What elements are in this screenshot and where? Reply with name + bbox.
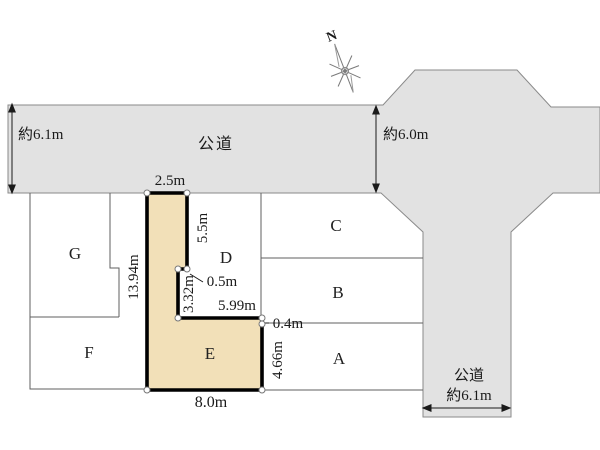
plot-label-c: C (330, 216, 341, 235)
dimension-label-e-right-lower: 4.66m (270, 341, 286, 379)
plot-label-a: A (333, 349, 346, 368)
road-shape (8, 70, 600, 417)
vertex-marker (259, 321, 265, 327)
vertex-marker (144, 387, 150, 393)
plot-boundary-g-right (110, 193, 119, 317)
cross-road-width-label: 約6.0m (383, 126, 429, 143)
top-road-name-label: 公道 (198, 135, 234, 153)
plot-label-f: F (84, 343, 93, 362)
dimension-label-e-bottom: 8.0m (195, 394, 228, 411)
vertex-marker (184, 266, 190, 272)
dimension-label-e-right-mid: 3.32m (181, 275, 197, 313)
dimension-label-e-left: 13.94m (126, 254, 142, 300)
plot-layout-svg: N 約6.1m 公道 約6.0m 公道 約6.1m 2.5m 5.5m 13.9… (0, 0, 600, 450)
dimension-label-e-inner-top: 5.99m (218, 298, 256, 314)
dimension-label-e-offset: 0.4m (273, 316, 304, 332)
plot-label-e: E (205, 344, 215, 363)
right-road-width-label: 約6.1m (446, 387, 492, 404)
north-label: N (325, 28, 340, 46)
plot-label-g: G (69, 244, 81, 263)
dimension-label-e-top: 2.5m (155, 173, 186, 189)
dimension-label-e-right-upper: 5.5m (195, 212, 211, 243)
plot-label-b: B (332, 283, 343, 302)
dimension-label-e-step: 0.5m (207, 274, 238, 290)
vertex-marker (259, 387, 265, 393)
top-road-width-label: 約6.1m (18, 126, 64, 143)
vertex-marker (184, 190, 190, 196)
compass-icon: N (315, 25, 367, 98)
vertex-marker (259, 315, 265, 321)
plot-label-d: D (220, 248, 232, 267)
right-road-name-label: 公道 (454, 367, 484, 384)
vertex-marker (175, 315, 181, 321)
vertex-marker (175, 266, 181, 272)
plot-layout-diagram: N 約6.1m 公道 約6.0m 公道 約6.1m 2.5m 5.5m 13.9… (0, 0, 600, 450)
vertex-marker (144, 190, 150, 196)
